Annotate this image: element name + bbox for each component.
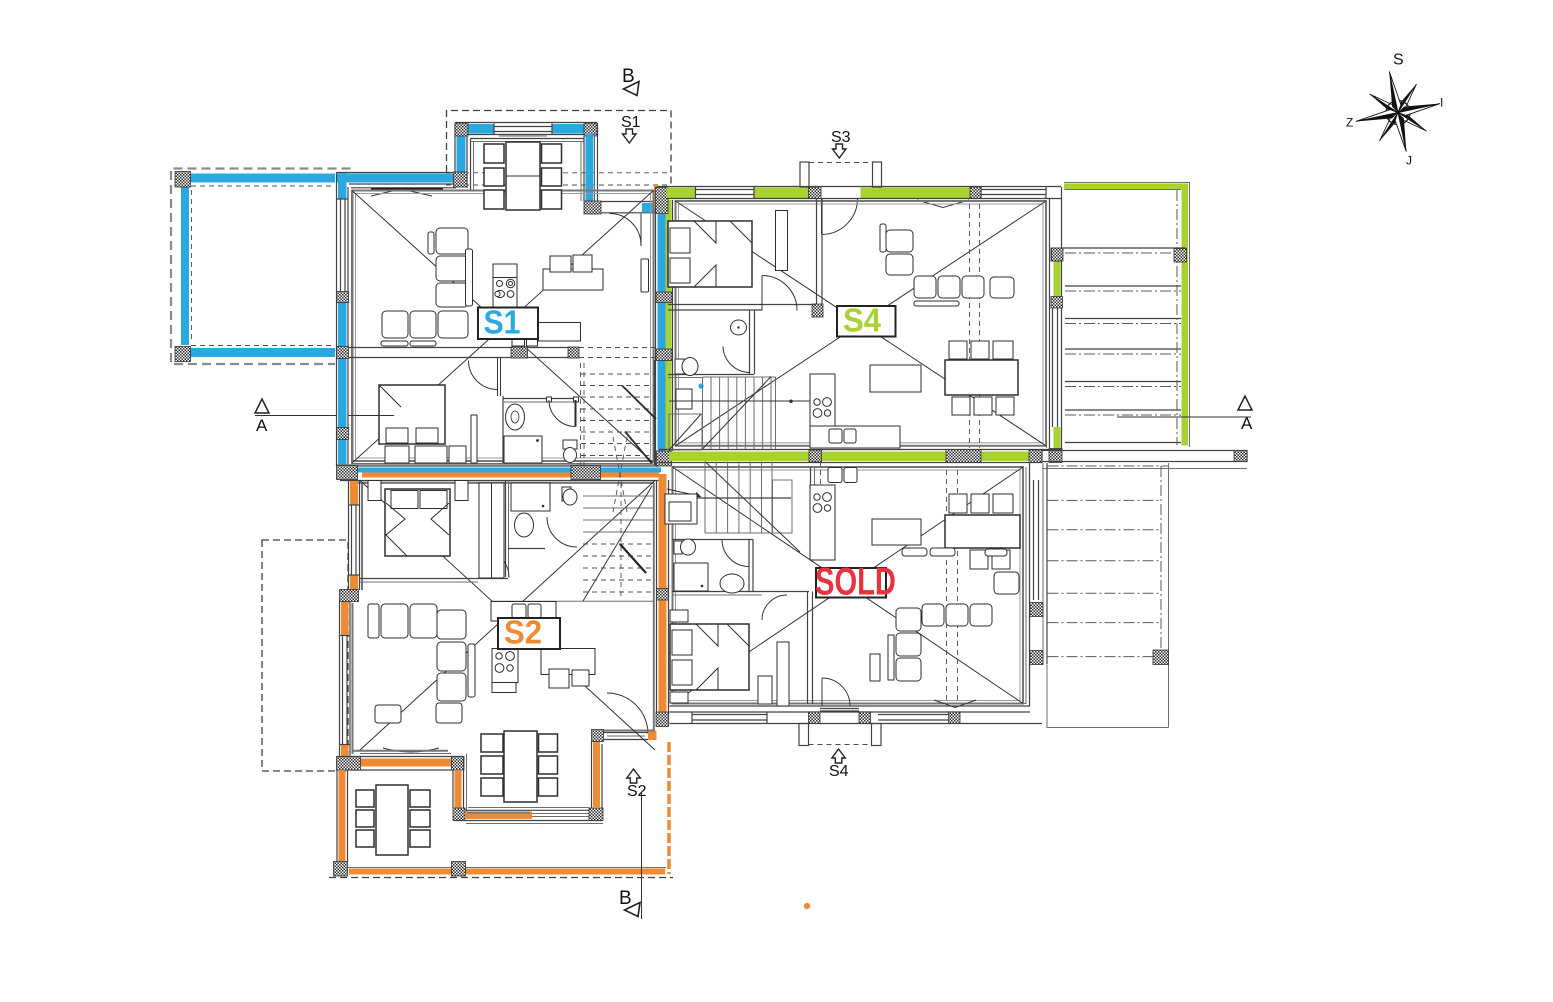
svg-text:SOLD: SOLD bbox=[815, 561, 896, 604]
svg-text:S4: S4 bbox=[829, 763, 849, 780]
svg-text:S2: S2 bbox=[504, 614, 542, 651]
svg-text:S1: S1 bbox=[484, 304, 521, 341]
svg-text:Z: Z bbox=[1346, 116, 1353, 130]
svg-text:B: B bbox=[619, 888, 632, 909]
svg-text:S4: S4 bbox=[843, 302, 882, 339]
svg-text:I: I bbox=[1440, 96, 1443, 110]
svg-text:S2: S2 bbox=[627, 783, 647, 800]
svg-text:S: S bbox=[1393, 52, 1404, 69]
svg-text:A: A bbox=[256, 416, 268, 435]
svg-text:J: J bbox=[1406, 154, 1412, 168]
